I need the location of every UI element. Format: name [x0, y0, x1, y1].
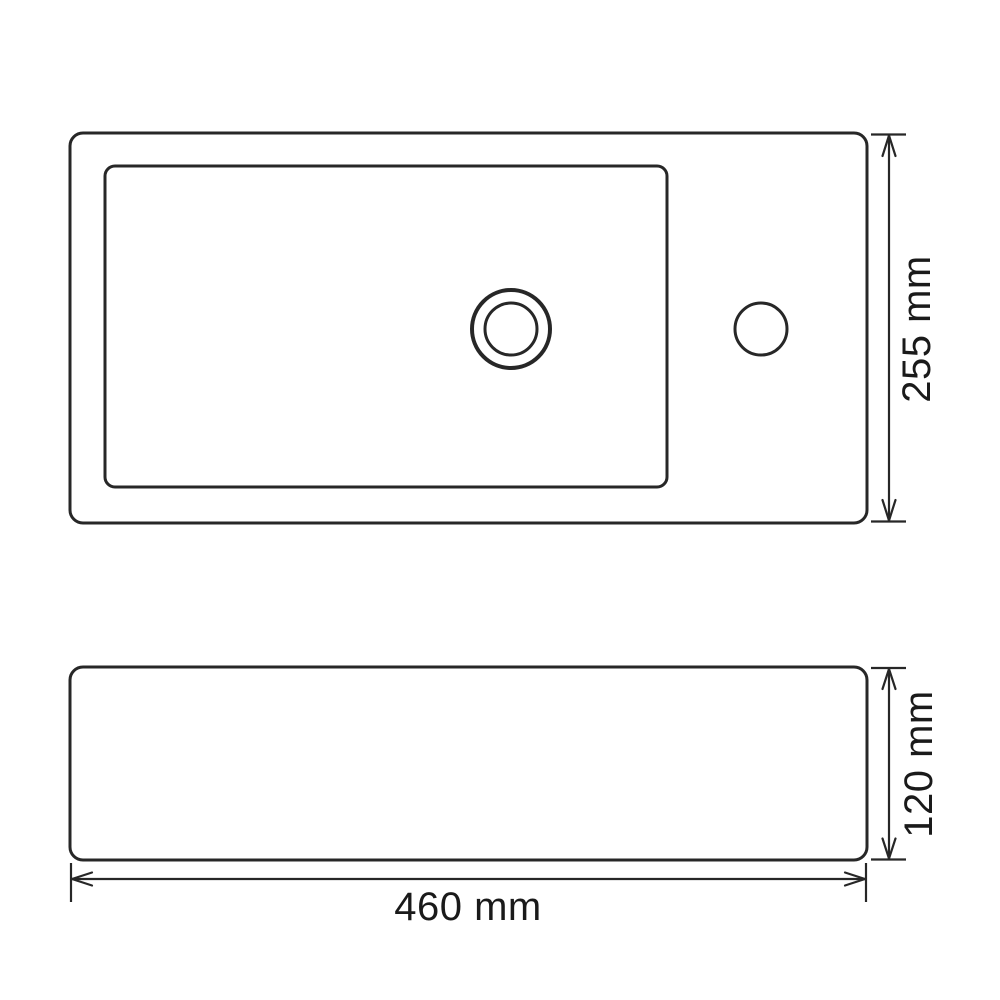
faucet-hole-icon	[735, 303, 787, 355]
dimension-front-view-height: 120 mm	[871, 668, 941, 860]
front-view-body-outline	[70, 667, 867, 860]
top-view-body-outline	[70, 133, 867, 523]
dimension-label-460mm: 460 mm	[394, 885, 542, 929]
basin-rim-outline	[105, 166, 667, 487]
drawing-canvas: 255 mm 120 mm 460 mm	[0, 0, 1000, 1000]
drain-inner-circle-icon	[485, 303, 537, 355]
sink-technical-drawing: 255 mm 120 mm 460 mm	[0, 0, 1000, 1000]
dimension-label-120mm: 120 mm	[897, 690, 941, 838]
sink-top-view	[70, 133, 867, 523]
dimension-top-view-depth: 255 mm	[871, 135, 939, 522]
dimension-label-255mm: 255 mm	[895, 255, 939, 403]
dimension-front-view-width: 460 mm	[71, 863, 866, 929]
sink-front-view	[70, 667, 867, 860]
